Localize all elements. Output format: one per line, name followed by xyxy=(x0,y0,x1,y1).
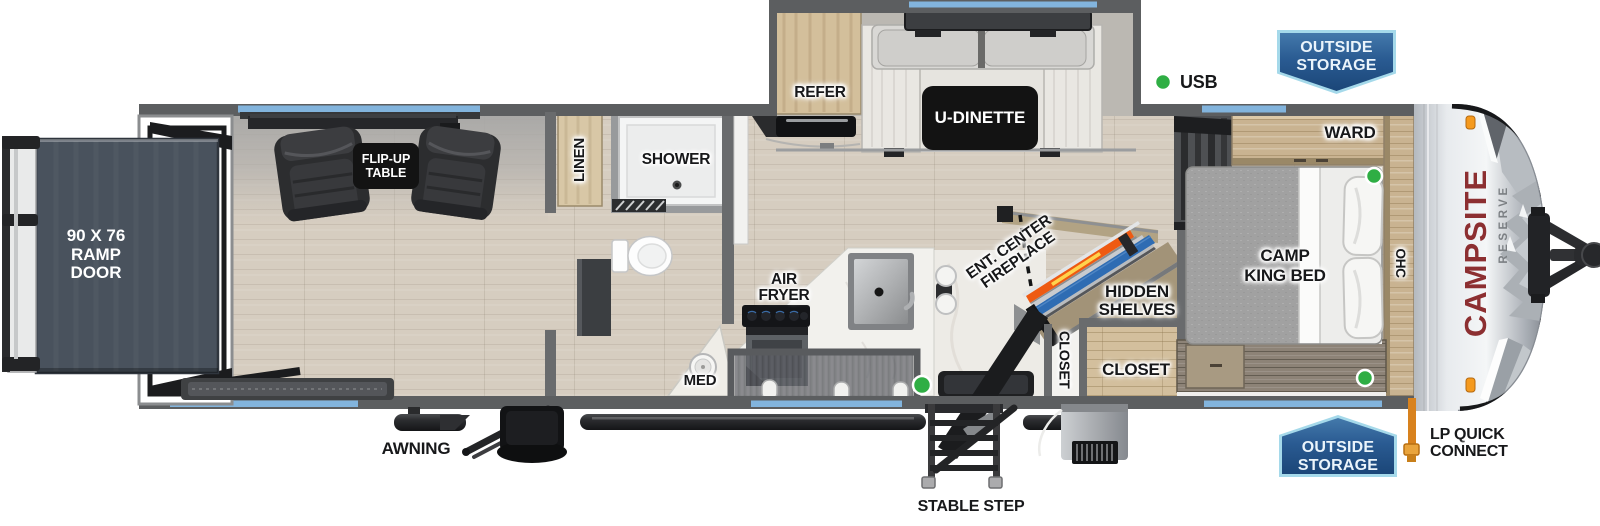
svg-text:RESERVE: RESERVE xyxy=(1498,184,1510,263)
svg-text:CAMPSITE: CAMPSITE xyxy=(1458,169,1493,337)
